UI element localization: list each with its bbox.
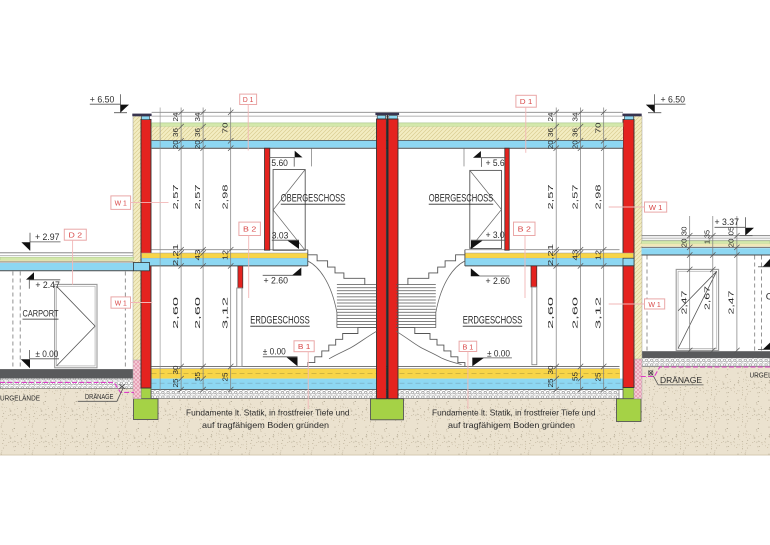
svg-text:Fundamente lt. Statik, in fros: Fundamente lt. Statik, in frostfreier Ti… <box>432 408 596 417</box>
svg-text:1,35: 1,35 <box>703 230 712 244</box>
svg-text:B 2: B 2 <box>518 225 531 234</box>
svg-text:+ 5.6: + 5.6 <box>486 158 505 168</box>
svg-text:W 1: W 1 <box>115 298 127 307</box>
svg-text:2,47: 2,47 <box>680 291 689 315</box>
svg-text:2,57: 2,57 <box>570 185 579 210</box>
svg-text:36: 36 <box>546 128 555 137</box>
svg-text:B 1: B 1 <box>462 342 473 351</box>
svg-text:+ 6.50: + 6.50 <box>90 94 115 104</box>
svg-text:12: 12 <box>221 250 230 260</box>
svg-text:+ 2.47: + 2.47 <box>35 280 60 290</box>
svg-text:30: 30 <box>680 227 689 236</box>
svg-text:2,57: 2,57 <box>546 185 555 210</box>
svg-text:D 1: D 1 <box>243 95 253 104</box>
svg-text:36: 36 <box>193 128 202 137</box>
svg-text:2,60: 2,60 <box>193 297 202 329</box>
svg-text:B 1: B 1 <box>298 342 311 351</box>
svg-text:20: 20 <box>193 140 202 149</box>
svg-text:W 1: W 1 <box>115 199 127 208</box>
svg-text:DRÄNAGE: DRÄNAGE <box>85 392 114 401</box>
svg-text:43: 43 <box>570 250 579 261</box>
svg-text:2,60: 2,60 <box>570 297 579 329</box>
svg-text:55: 55 <box>570 372 579 381</box>
svg-text:D 1: D 1 <box>520 97 533 106</box>
svg-text:43: 43 <box>193 250 202 261</box>
svg-text:25: 25 <box>171 379 180 388</box>
svg-text:± 0.00: ± 0.00 <box>487 349 510 359</box>
svg-text:W 1: W 1 <box>648 300 661 309</box>
svg-text:2,98: 2,98 <box>594 185 603 210</box>
svg-text:OBERGESCHOSS: OBERGESCHOSS <box>281 193 346 205</box>
svg-text:05: 05 <box>727 227 736 236</box>
svg-text:OBERGESCHOSS: OBERGESCHOSS <box>429 193 494 205</box>
svg-text:70: 70 <box>594 123 603 134</box>
svg-text:2,21: 2,21 <box>171 244 180 266</box>
svg-text:2,60: 2,60 <box>171 297 180 329</box>
svg-text:URGELÄNDE: URGELÄNDE <box>0 393 40 402</box>
svg-text:CARPORT: CARPORT <box>766 291 770 302</box>
svg-text:36: 36 <box>570 128 579 137</box>
svg-text:auf tragfähigem Boden gründen: auf tragfähigem Boden gründen <box>448 421 575 430</box>
svg-text:20: 20 <box>570 140 579 149</box>
svg-text:URGELÄNDE: URGELÄNDE <box>750 370 770 379</box>
svg-text:+ 2.60: + 2.60 <box>486 276 511 286</box>
svg-text:D 2: D 2 <box>68 231 82 240</box>
svg-text:3,12: 3,12 <box>221 297 230 329</box>
svg-text:25: 25 <box>546 379 555 388</box>
svg-text:25: 25 <box>594 373 603 382</box>
svg-text:Fundamente lt. Statik, in fros: Fundamente lt. Statik, in frostfreier Ti… <box>186 408 350 417</box>
svg-text:+ 2.97: + 2.97 <box>35 232 60 242</box>
svg-text:36: 36 <box>171 128 180 137</box>
svg-text:2,21: 2,21 <box>546 244 555 266</box>
svg-text:2,57: 2,57 <box>193 185 202 210</box>
svg-text:24: 24 <box>546 113 555 122</box>
svg-text:3,12: 3,12 <box>594 297 603 329</box>
svg-text:ERDGESCHOSS: ERDGESCHOSS <box>250 315 310 327</box>
svg-text:B 2: B 2 <box>243 225 256 234</box>
svg-text:2,57: 2,57 <box>171 185 180 210</box>
svg-text:70: 70 <box>221 123 230 134</box>
svg-text:+ 2.60: + 2.60 <box>264 275 289 285</box>
svg-text:CARPORT: CARPORT <box>23 309 59 320</box>
svg-text:25: 25 <box>221 373 230 382</box>
svg-text:3.03: 3.03 <box>272 231 289 241</box>
svg-text:auf tragfähigem Boden gründen: auf tragfähigem Boden gründen <box>202 421 329 430</box>
svg-text:34: 34 <box>570 113 579 122</box>
svg-text:12: 12 <box>594 250 603 260</box>
svg-text:30: 30 <box>171 366 180 375</box>
svg-text:20: 20 <box>680 239 689 248</box>
svg-text:2,98: 2,98 <box>221 185 230 210</box>
svg-text:30: 30 <box>546 366 555 375</box>
svg-text:2,47: 2,47 <box>727 291 736 315</box>
svg-text:2,60: 2,60 <box>546 297 555 329</box>
svg-text:W 1: W 1 <box>649 203 663 212</box>
svg-text:2,67: 2,67 <box>703 286 712 310</box>
svg-text:ERDGESCHOSS: ERDGESCHOSS <box>463 315 523 327</box>
svg-text:5.60: 5.60 <box>271 158 288 168</box>
svg-text:± 0.00: ± 0.00 <box>263 346 286 356</box>
svg-text:55: 55 <box>193 372 202 381</box>
svg-text:20: 20 <box>546 140 555 149</box>
svg-text:± 0.00: ± 0.00 <box>35 349 58 359</box>
svg-text:+ 3.0: + 3.0 <box>486 230 505 240</box>
svg-text:20: 20 <box>171 140 180 149</box>
svg-text:+ 3.37: + 3.37 <box>715 217 740 227</box>
svg-text:+ 6.50: + 6.50 <box>661 94 686 104</box>
svg-text:34: 34 <box>193 113 202 122</box>
svg-text:24: 24 <box>171 113 180 122</box>
svg-text:20: 20 <box>727 239 736 248</box>
svg-text:DRÄNAGE: DRÄNAGE <box>660 375 703 385</box>
